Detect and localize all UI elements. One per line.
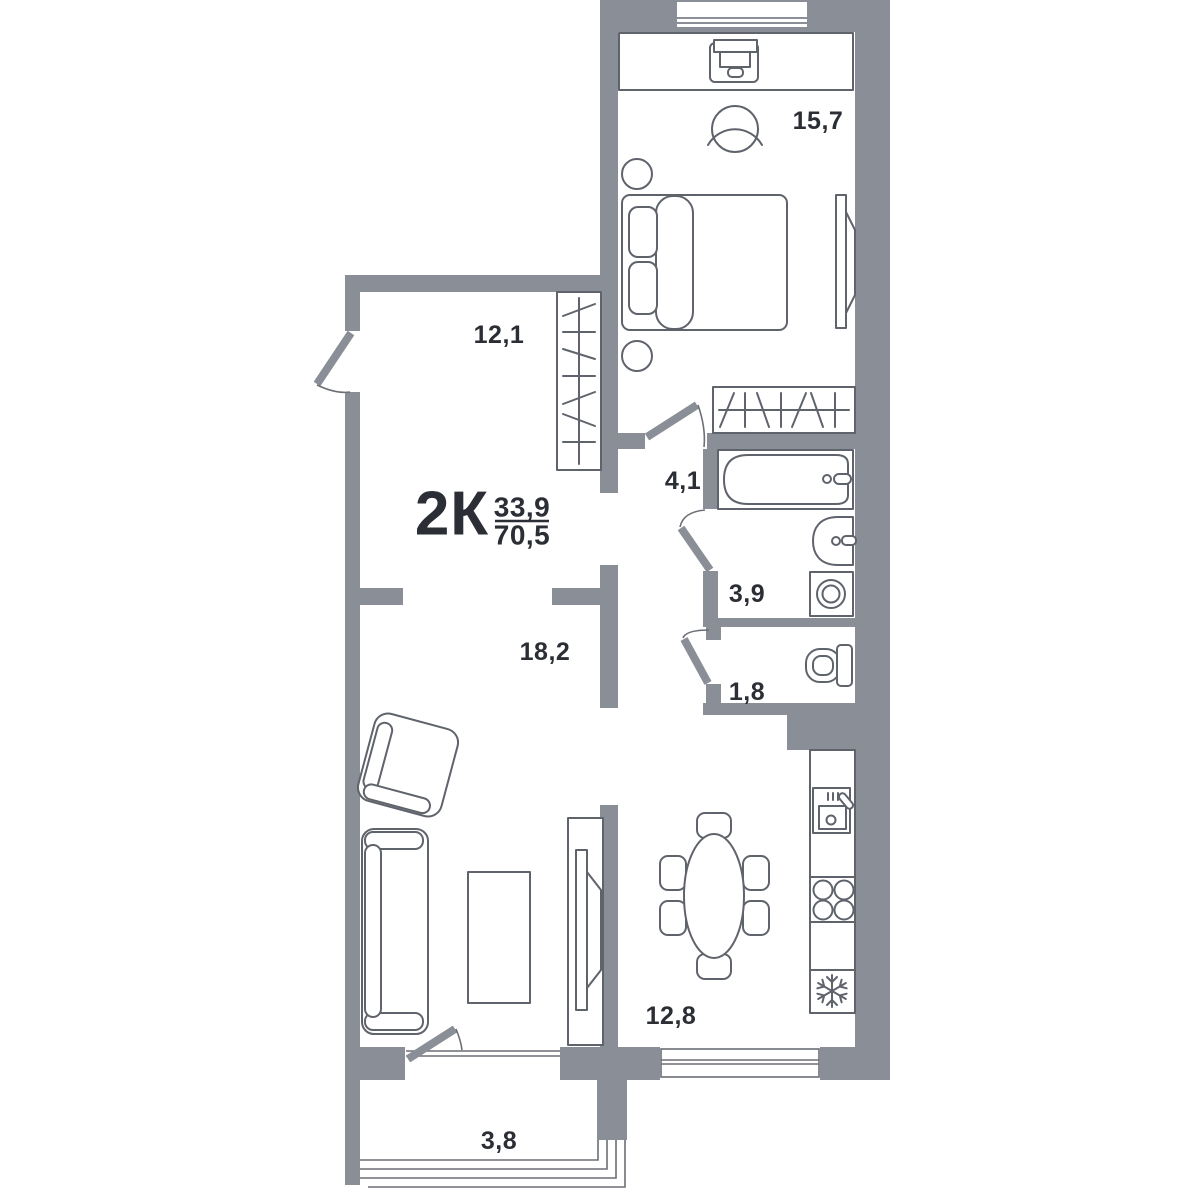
bed-icon	[622, 195, 787, 330]
sofa-icon	[362, 829, 428, 1034]
kitchen-window	[660, 1047, 820, 1080]
living-room-window	[405, 1047, 560, 1080]
toilet-icon	[806, 645, 852, 686]
plan-area-living: 33,9	[494, 492, 551, 523]
plan-area-total: 70,5	[494, 520, 551, 551]
floor-plan-svg: 15,7 12,1 4,1 3,9 1,8 18,2 12,8 3,8 2К 3…	[0, 0, 1200, 1200]
bedroom-closet-icon	[713, 387, 855, 433]
coffee-table-icon	[468, 872, 530, 1003]
room-area-kitchen: 12,8	[646, 1002, 697, 1030]
bathtub-icon	[718, 450, 853, 509]
washing-machine-icon	[810, 572, 853, 616]
bedroom-desk	[619, 33, 853, 90]
washbasin-icon	[813, 517, 856, 565]
entrance-door	[317, 333, 351, 392]
room-area-bedroom: 15,7	[793, 107, 844, 135]
hallway-wardrobe-icon	[557, 292, 601, 470]
bedroom-tv-icon	[836, 195, 855, 328]
living-room-tv-icon	[568, 818, 603, 1045]
room-area-living: 18,2	[520, 638, 571, 666]
floor-plan-page: 15,7 12,1 4,1 3,9 1,8 18,2 12,8 3,8 2К 3…	[0, 0, 1200, 1200]
room-area-corridor: 4,1	[665, 467, 701, 495]
bathroom-door	[680, 510, 710, 570]
desk-chair-icon	[708, 106, 762, 152]
room-area-bathroom: 3,9	[729, 580, 765, 608]
armchair-icon	[355, 710, 461, 819]
plan-title-block: 2К 33,9 70,5	[415, 480, 550, 551]
kitchen-sink-icon	[813, 788, 854, 833]
wc-door	[683, 630, 709, 683]
nightstand-icon	[622, 341, 652, 371]
room-area-wc: 1,8	[729, 678, 765, 706]
nightstand-icon	[622, 159, 652, 189]
room-area-hallway: 12,1	[474, 321, 525, 349]
plan-title: 2К	[415, 480, 489, 549]
dining-set-icon	[660, 813, 769, 979]
room-area-balcony: 3,8	[481, 1127, 517, 1155]
bedroom-door	[647, 405, 704, 447]
